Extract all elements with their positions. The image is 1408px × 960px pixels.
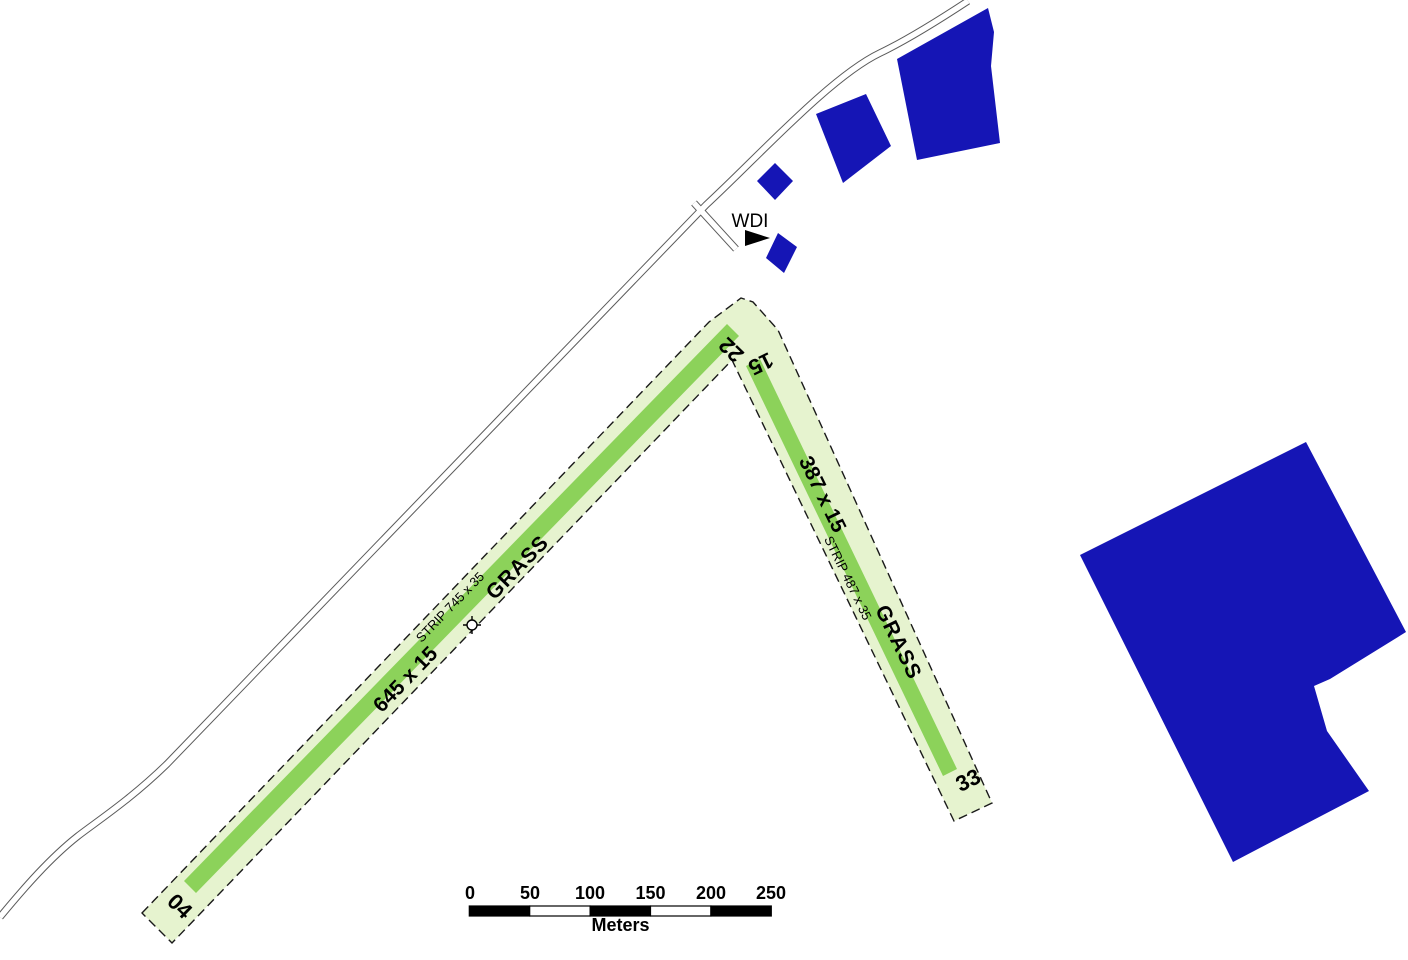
building-large-north [897,8,1000,160]
scalebar-segment-2 [530,906,590,916]
scalebar-unit-label: Meters [591,915,649,935]
scalebar-segment-4 [651,906,711,916]
wdi-triangle-icon [745,230,770,246]
wdi-group: WDI [732,211,770,246]
scalebar-tick-250: 250 [756,883,786,903]
scalebar-segment-5 [711,906,771,916]
building-medium-north [816,94,891,183]
scalebar-tick-100: 100 [575,883,605,903]
aerodrome-map-svg: WDI 04 22 645 x 15 STRIP 745 x 35 GRASS … [0,0,1408,960]
building-small-north [757,163,793,200]
scalebar-tick-50: 50 [520,883,540,903]
scalebar-tick-0: 0 [465,883,475,903]
runway-0422 [184,324,739,893]
scalebar: 0 50 100 150 200 250 Meters [465,883,786,935]
building-near-wdi [766,233,797,273]
scalebar-segment-1 [469,906,529,916]
building-large-east [1080,442,1406,862]
aerodrome-chart: WDI 04 22 645 x 15 STRIP 745 x 35 GRASS … [0,0,1408,960]
scalebar-tick-200: 200 [696,883,726,903]
wdi-label: WDI [732,211,769,232]
access-road-spur-surface [694,203,736,249]
scalebar-tick-150: 150 [635,883,665,903]
buildings [757,8,1406,862]
